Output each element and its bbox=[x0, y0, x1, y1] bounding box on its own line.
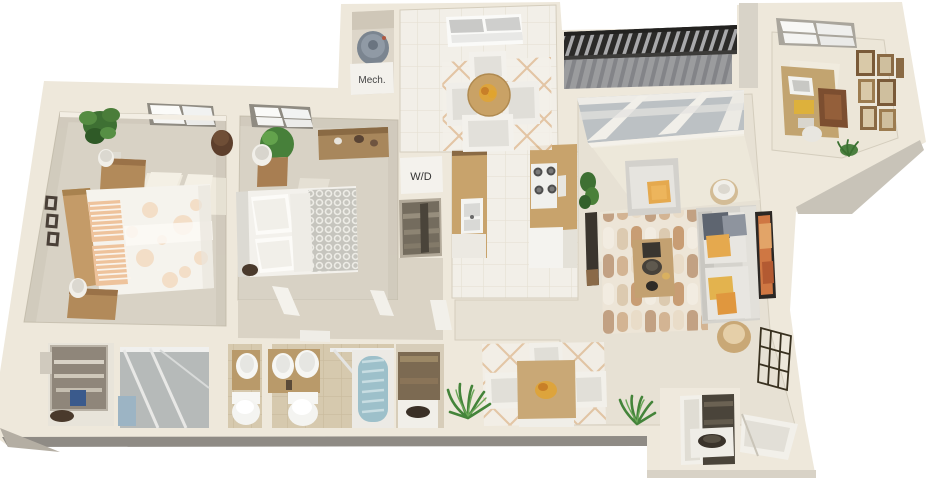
svg-text:Mech.: Mech. bbox=[358, 75, 385, 86]
svg-text:W/D: W/D bbox=[410, 171, 431, 183]
